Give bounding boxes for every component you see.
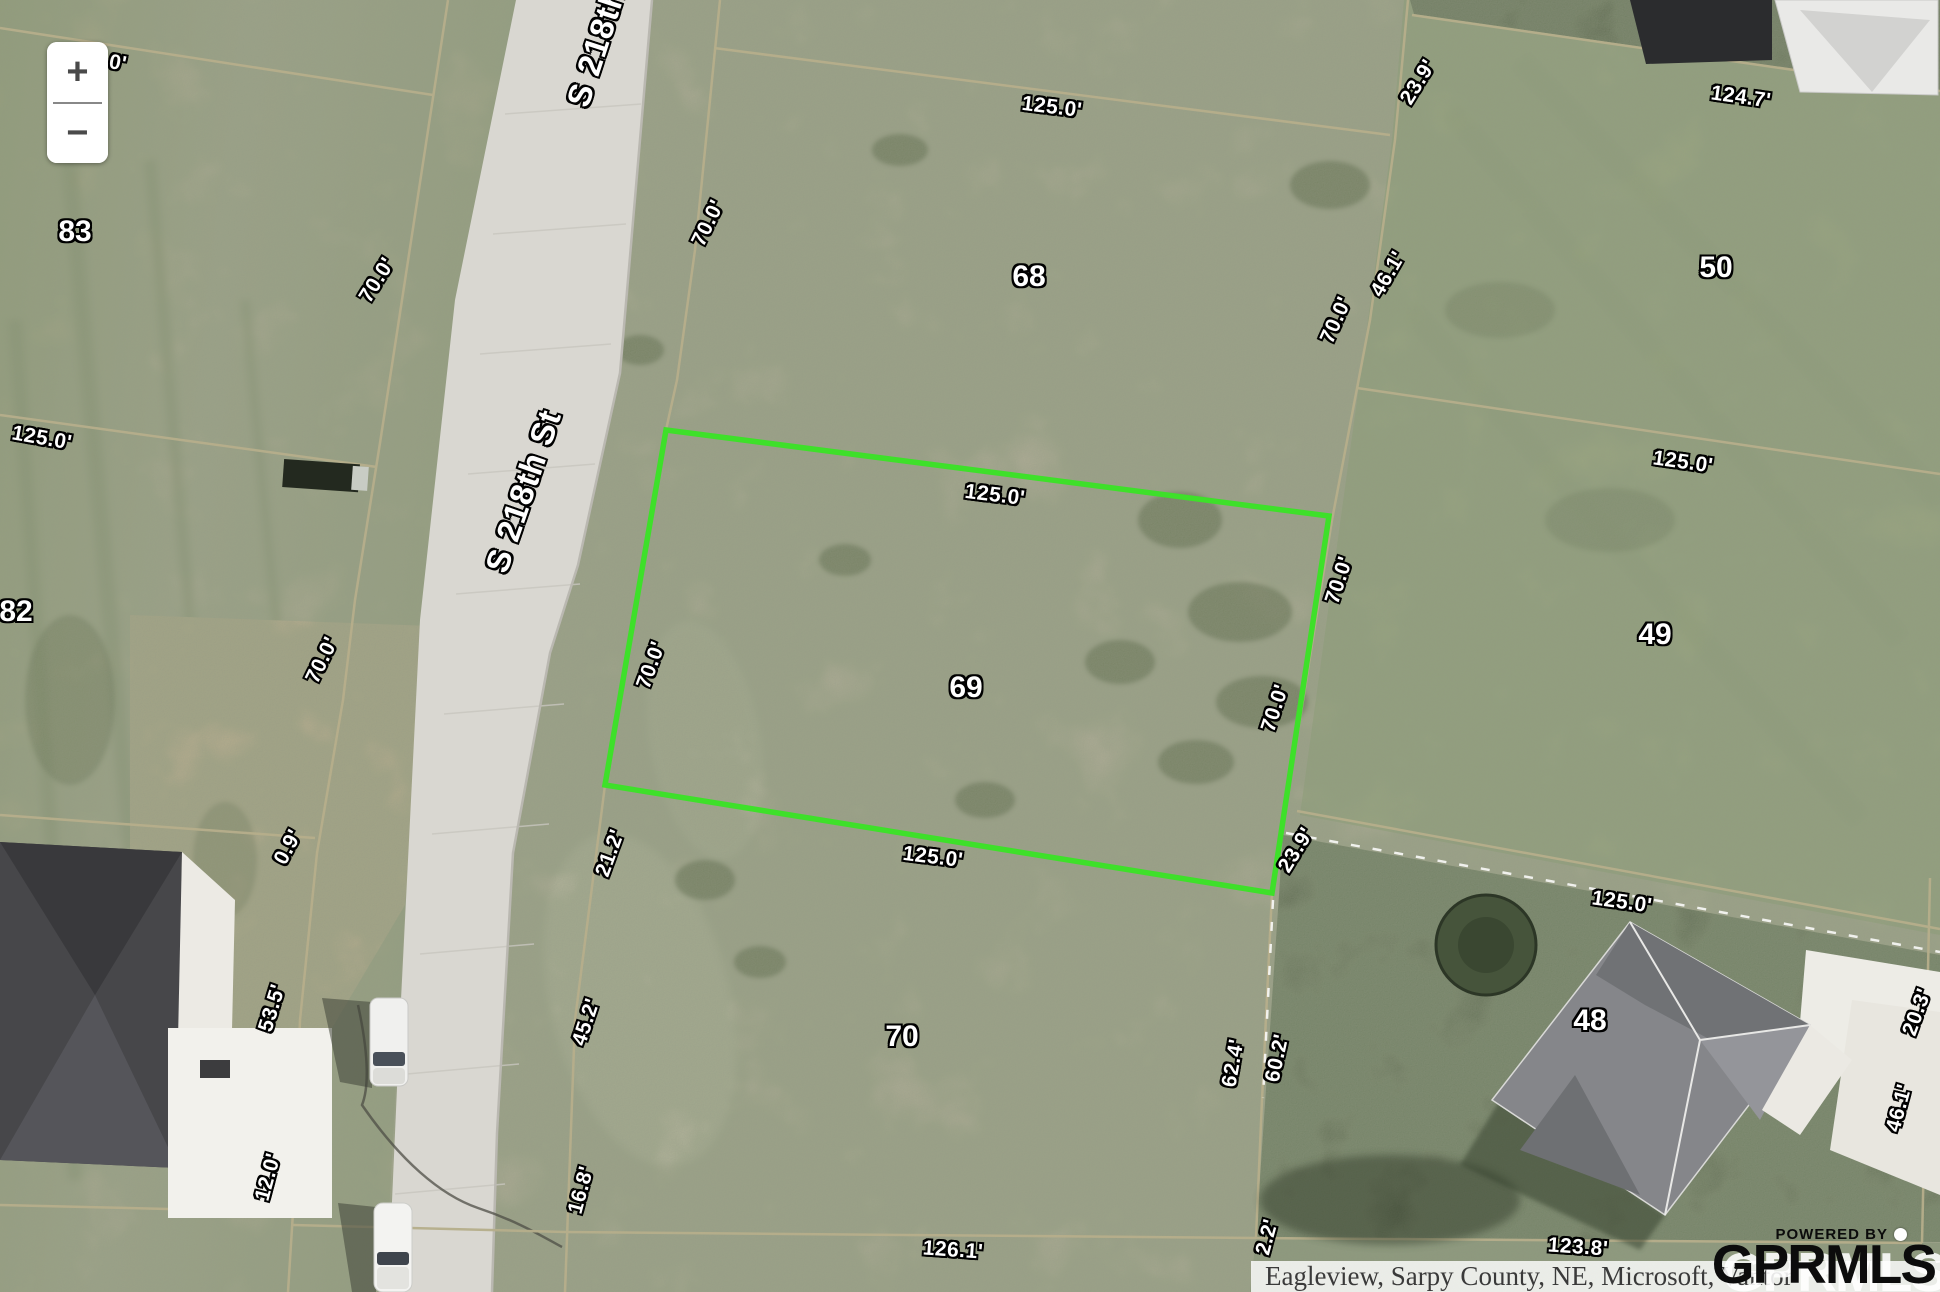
gprmls-logo: POWERED BY GPRMLS: [1712, 1226, 1935, 1290]
trailer: [282, 459, 369, 493]
zoom-in-button[interactable]: +: [47, 42, 108, 102]
zoom-control: + −: [47, 42, 108, 163]
aerial-map[interactable]: [0, 0, 1940, 1292]
map-viewport: 0'8370.0'125.0'8270.0'0.9'53.5'12.0'S 21…: [0, 0, 1940, 1292]
zoom-out-button[interactable]: −: [47, 104, 108, 164]
gprmls-logo-text: GPRMLS: [1712, 1239, 1935, 1290]
